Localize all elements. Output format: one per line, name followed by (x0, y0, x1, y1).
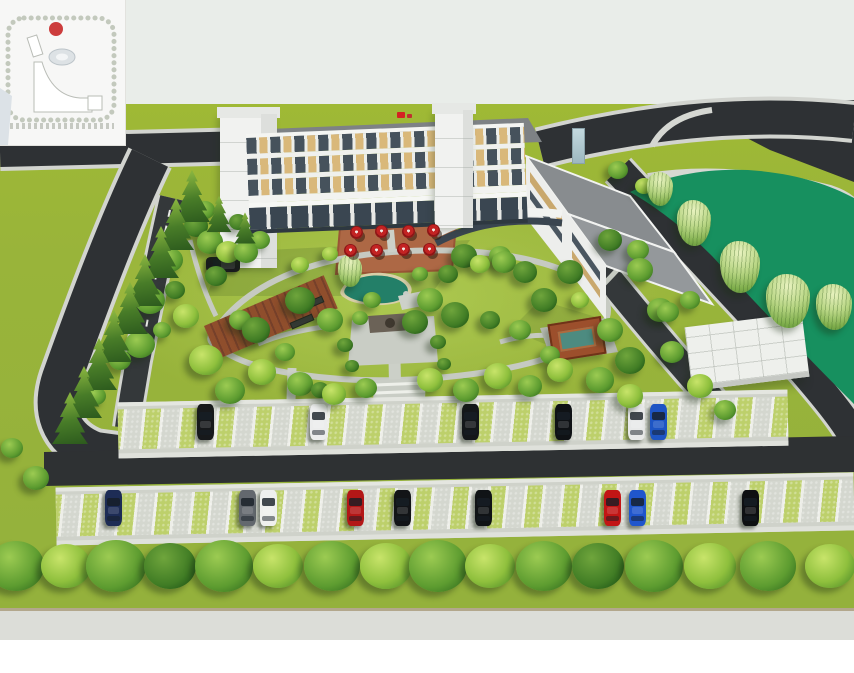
car-g1 (199, 412, 212, 420)
terrace-umbrella (370, 244, 383, 257)
car-g1 (744, 498, 757, 506)
street-tree (144, 543, 196, 589)
car-g1 (606, 498, 619, 506)
garden-tree (153, 322, 171, 338)
garden-tree (557, 260, 583, 283)
street-tree (304, 541, 360, 590)
parked-car-lower-row (742, 490, 759, 526)
car-g1 (631, 498, 644, 506)
garden-tree (275, 343, 295, 361)
garden-tree (430, 335, 446, 349)
garden-tree (627, 258, 653, 281)
street-tree (41, 544, 91, 588)
garden-tree (337, 338, 353, 352)
car-g2 (631, 516, 644, 521)
parked-car-upper-row (197, 404, 214, 440)
willow-tree (816, 284, 852, 330)
building-right-tower (435, 110, 473, 228)
garden-tree (417, 288, 443, 311)
car-g2 (396, 516, 409, 521)
street-tree (805, 544, 854, 588)
street-tree (625, 540, 683, 591)
terrace-link-path (390, 230, 392, 252)
garden-tree (571, 292, 589, 308)
garden-tree (547, 358, 573, 381)
inset-location-marker (49, 22, 63, 36)
garden-tree (518, 375, 542, 397)
car-g1 (464, 412, 477, 420)
garden-tree (173, 304, 199, 327)
roof-flag (407, 114, 412, 118)
car-hl (558, 421, 569, 428)
car-hl (200, 421, 211, 428)
car-g2 (262, 516, 275, 521)
garden-tree (189, 345, 223, 376)
terrace-umbrella (427, 224, 440, 237)
car-g2 (349, 516, 362, 521)
street-tree (740, 541, 796, 590)
parked-car-upper-row (628, 404, 645, 440)
inset-water (0, 88, 12, 145)
street-tree (409, 540, 467, 591)
car-g1 (630, 412, 643, 420)
car-g2 (630, 430, 643, 435)
car-hl (242, 507, 253, 514)
street-tree (572, 543, 624, 589)
inset-site-plan (0, 0, 126, 146)
garden-tree (470, 255, 490, 273)
car-hl (631, 421, 642, 428)
garden-tree (322, 383, 346, 405)
garden-tree (317, 308, 343, 331)
car-g2 (477, 516, 490, 521)
car-g1 (652, 412, 665, 420)
car-hl (108, 507, 119, 514)
parked-car-lower-row (394, 490, 411, 526)
top-road (0, 146, 250, 152)
car-hl (607, 507, 618, 514)
parked-car-lower-row (239, 490, 256, 526)
garden-tree (615, 347, 645, 374)
car-hl (745, 507, 756, 514)
parking-stalls (56, 479, 854, 537)
garden-tree (480, 311, 500, 329)
car-g2 (241, 516, 254, 521)
car-g1 (262, 498, 275, 506)
garden-tree (586, 367, 614, 392)
car-g1 (557, 412, 570, 420)
car-g1 (107, 498, 120, 506)
car-g2 (464, 430, 477, 435)
tower-floor-seams (435, 110, 473, 228)
garden-tree (165, 281, 185, 299)
garden-tree (248, 359, 276, 384)
car-hl (653, 421, 664, 428)
garden-tree (608, 161, 628, 179)
car-hl (478, 507, 489, 514)
car-g1 (477, 498, 490, 506)
garden-tree (484, 363, 512, 388)
garden-tree (23, 466, 49, 489)
garden-tree (215, 377, 245, 404)
parking-stalls (118, 396, 789, 449)
garden-tree (287, 372, 313, 395)
glazed-stair (572, 128, 585, 164)
parked-car-upper-row (310, 404, 327, 440)
car-g1 (396, 498, 409, 506)
car-g1 (241, 498, 254, 506)
garden-tree (627, 240, 649, 260)
willow-tree (677, 200, 711, 246)
parked-car-lower-row (347, 490, 364, 526)
street-tree (465, 544, 515, 588)
car-hl (313, 421, 324, 428)
parked-car-lower-row (105, 490, 122, 526)
garden-tree (417, 368, 443, 391)
parked-car-upper-row (555, 404, 572, 440)
architectural-aerial-render (0, 0, 854, 673)
inset-annex (27, 35, 43, 57)
feature-wall-opening (385, 318, 395, 328)
garden-tree (597, 318, 623, 341)
car-g2 (107, 516, 120, 521)
terrace-umbrella (375, 225, 388, 238)
garden-tree (285, 287, 315, 314)
terrace-umbrella (350, 226, 363, 239)
parked-car-lower-row (475, 490, 492, 526)
garden-tree (509, 320, 531, 340)
inset-building-footprint (34, 62, 92, 112)
car-hl (350, 507, 361, 514)
car-g1 (312, 412, 325, 420)
garden-tree (714, 400, 736, 420)
garden-tree (355, 378, 377, 398)
garden-tree (680, 291, 700, 309)
car-g2 (606, 516, 619, 521)
street-tree (360, 543, 412, 589)
parked-car-lower-row (629, 490, 646, 526)
garden-tree (234, 241, 258, 263)
terrace-umbrella (397, 243, 410, 256)
parked-car-upper-row (650, 404, 667, 440)
garden-tree (352, 311, 368, 325)
parked-car-lower-row (604, 490, 621, 526)
street-tree (253, 544, 303, 588)
garden-tree (531, 288, 557, 311)
car-g2 (199, 430, 212, 435)
garden-tree (617, 384, 643, 407)
garden-tree (125, 331, 155, 358)
inset-plan-drawing (0, 0, 125, 145)
garden-tree (687, 374, 713, 397)
street-tree (684, 543, 736, 589)
garden-tree (660, 341, 684, 363)
garden-tree (438, 265, 458, 283)
garden-tree (453, 378, 479, 401)
garden-tree (1, 438, 23, 458)
car-hl (397, 507, 408, 514)
car-g2 (652, 430, 665, 435)
street-tree (86, 540, 146, 593)
building-main-facade (246, 123, 528, 234)
car-hl (263, 507, 274, 514)
inset-pond-island (56, 54, 68, 61)
car-g2 (557, 430, 570, 435)
terrace-umbrella (402, 225, 415, 238)
garden-tree (242, 317, 270, 342)
garden-tree (363, 292, 381, 308)
terrace-umbrella (423, 243, 436, 256)
parked-car-lower-row (260, 490, 277, 526)
street-tree (195, 540, 253, 591)
street-tree (516, 541, 572, 590)
car-hl (632, 507, 643, 514)
garden-tree (291, 257, 309, 273)
car-hl (465, 421, 476, 428)
parked-car-upper-row (462, 404, 479, 440)
garden-tree (412, 267, 428, 281)
garden-tree (205, 266, 227, 286)
car-g2 (744, 516, 757, 521)
terrace-umbrella (344, 244, 357, 257)
garden-tree (402, 310, 428, 333)
car-g1 (349, 498, 362, 506)
garden-tree (322, 247, 338, 261)
inset-annex (88, 96, 102, 110)
garden-tree (598, 229, 622, 251)
garden-tree (657, 302, 679, 322)
garden-tree (513, 261, 537, 283)
pavilion-roof-center (558, 326, 597, 351)
car-g2 (312, 430, 325, 435)
roof-flag (397, 112, 405, 118)
garden-tree (441, 302, 469, 327)
